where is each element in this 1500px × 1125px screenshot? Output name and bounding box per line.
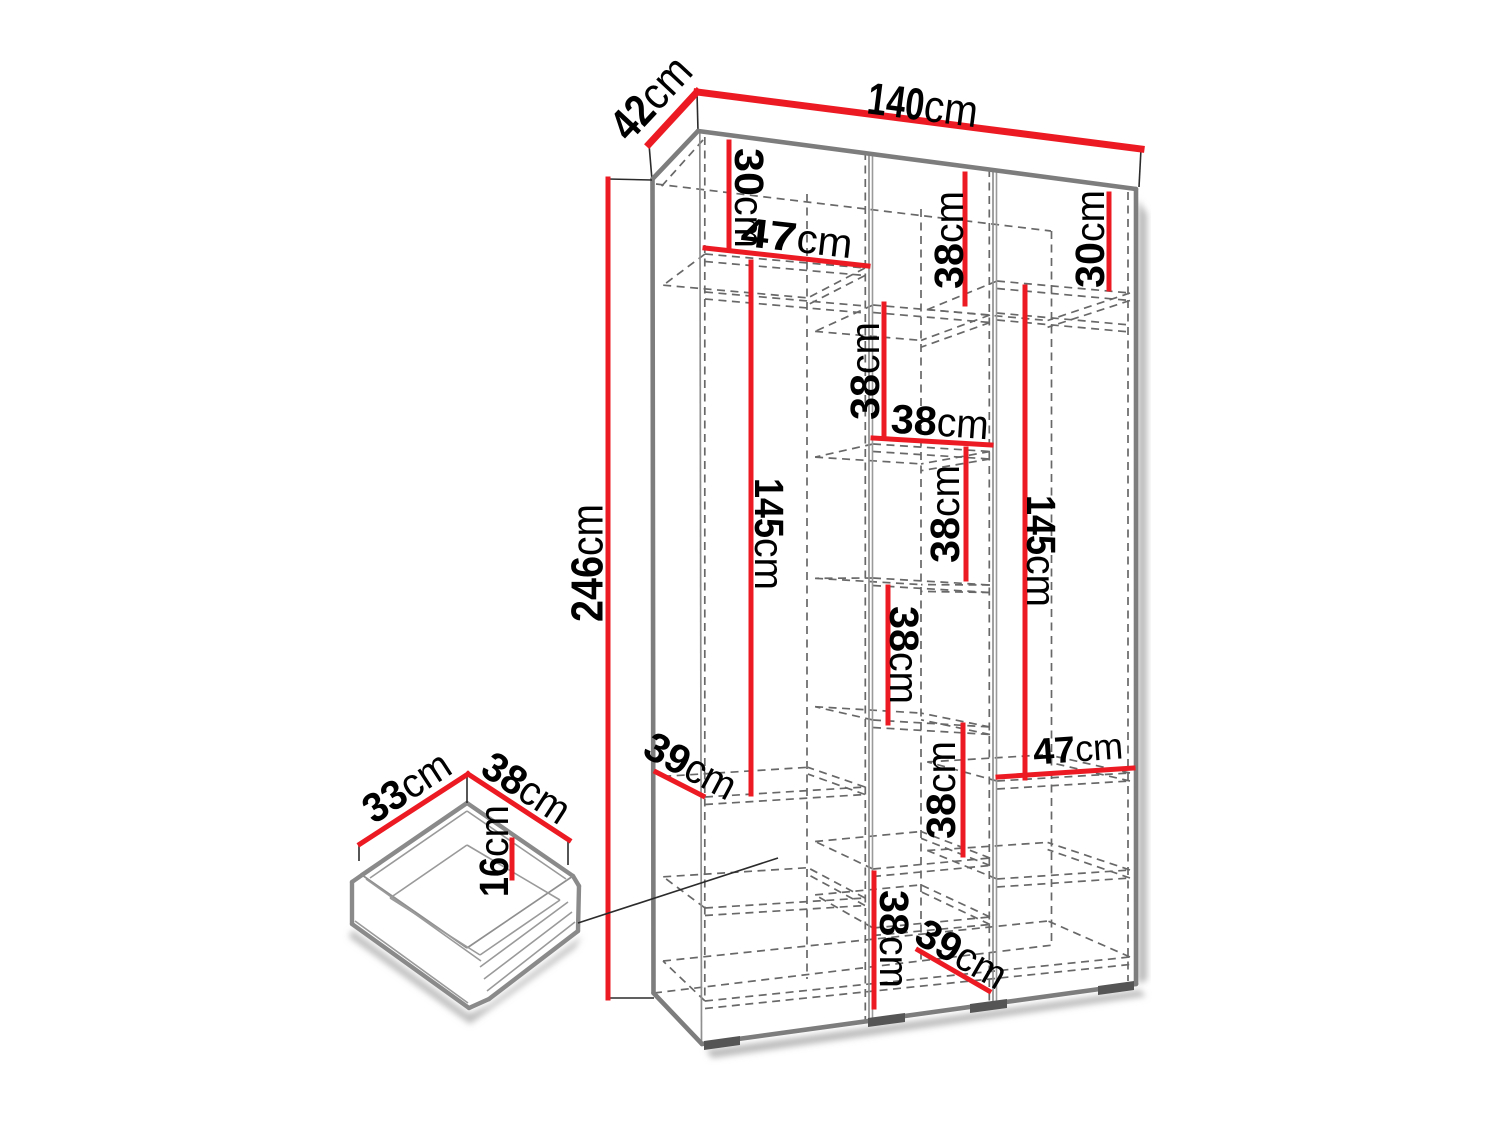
svg-text:cm: cm [842,322,888,374]
svg-text:38: 38 [889,396,938,445]
svg-text:38: 38 [918,793,964,839]
svg-text:246: 246 [561,556,612,622]
svg-text:145: 145 [1018,495,1064,555]
svg-text:47: 47 [1032,729,1077,773]
svg-text:cm: cm [1074,725,1125,769]
svg-text:cm: cm [1018,555,1064,607]
svg-text:30: 30 [726,148,772,196]
svg-text:cm: cm [881,652,927,704]
svg-text:47: 47 [739,209,800,261]
svg-text:cm: cm [471,805,517,857]
svg-text:16: 16 [471,857,517,897]
svg-text:cm: cm [918,741,964,793]
svg-text:38: 38 [842,374,888,420]
svg-text:38: 38 [926,243,972,289]
svg-text:cm: cm [926,191,972,243]
svg-text:38: 38 [881,606,927,652]
svg-text:cm: cm [794,215,855,267]
svg-text:38: 38 [922,517,968,563]
svg-text:cm: cm [561,504,612,556]
svg-text:cm: cm [1067,190,1113,242]
svg-text:cm: cm [935,399,990,449]
svg-text:30: 30 [1067,242,1113,288]
svg-text:38: 38 [871,890,917,936]
svg-text:cm: cm [746,538,792,590]
svg-text:145: 145 [746,478,792,538]
svg-text:cm: cm [922,465,968,517]
svg-text:cm: cm [921,80,981,137]
svg-text:140: 140 [865,73,928,131]
